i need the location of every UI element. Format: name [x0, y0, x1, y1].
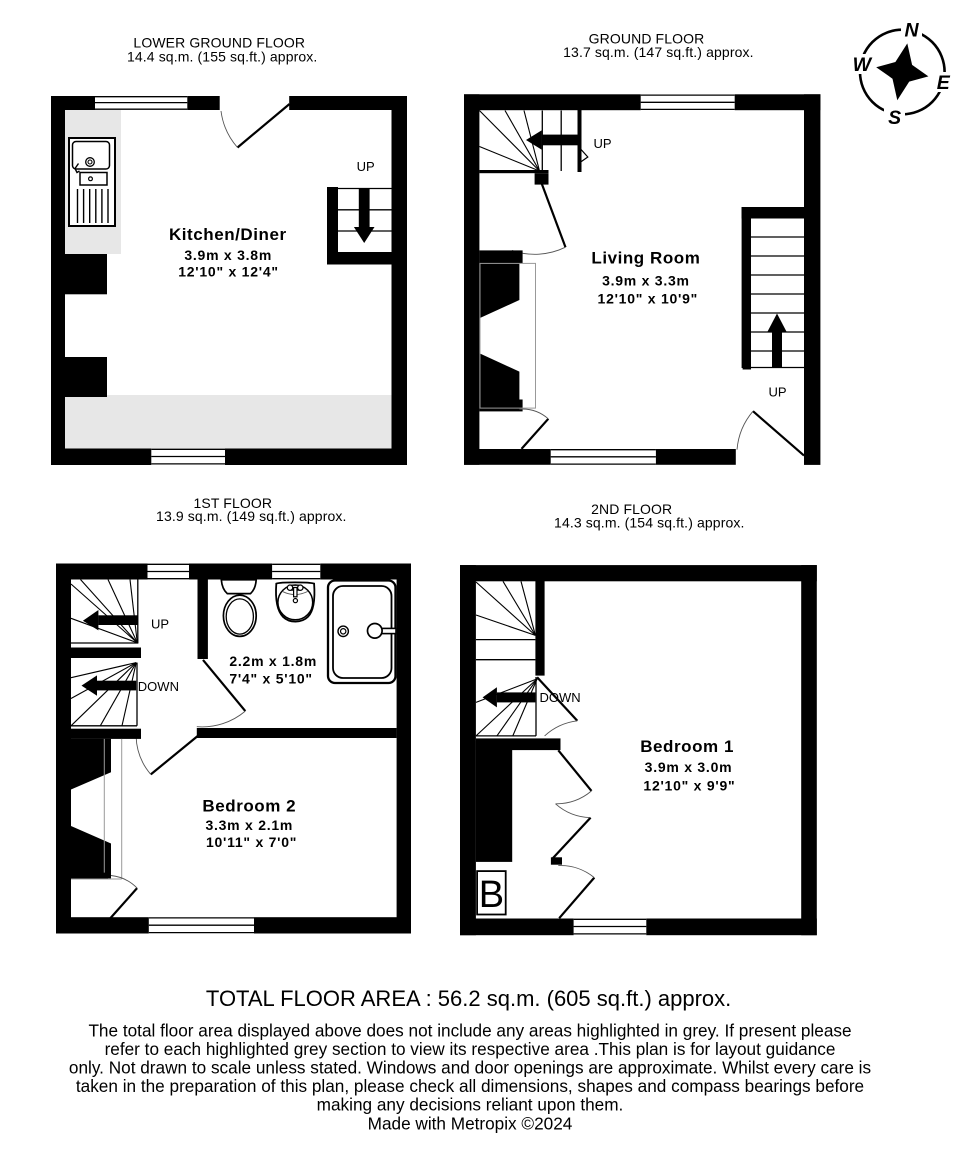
svg-text:UP: UP [593, 136, 611, 151]
svg-text:Living Room: Living Room [591, 249, 700, 268]
svg-text:12'10" x 9'9": 12'10" x 9'9" [643, 778, 735, 794]
svg-text:Made with Metropix ©2024: Made with Metropix ©2024 [368, 1113, 573, 1133]
svg-text:2.2m x 1.8m: 2.2m x 1.8m [229, 653, 317, 669]
svg-text:S: S [888, 107, 901, 129]
svg-text:3.3m x 2.1m: 3.3m x 2.1m [205, 817, 293, 833]
svg-text:12'10" x 10'9": 12'10" x 10'9" [598, 291, 699, 307]
svg-text:14.3 sq.m. (154 sq.ft.) approx: 14.3 sq.m. (154 sq.ft.) approx. [554, 515, 744, 531]
svg-text:W: W [853, 54, 873, 76]
svg-text:Kitchen/Diner: Kitchen/Diner [169, 225, 287, 244]
svg-text:12'10" x 12'4": 12'10" x 12'4" [178, 264, 279, 280]
svg-text:10'11" x 7'0": 10'11" x 7'0" [206, 834, 297, 850]
svg-text:E: E [937, 72, 951, 94]
svg-text:Bedroom 2: Bedroom 2 [202, 797, 296, 816]
svg-text:3.9m x 3.3m: 3.9m x 3.3m [602, 273, 690, 289]
svg-text:taken in the preparation of th: taken in the preparation of this plan, p… [76, 1076, 864, 1096]
svg-text:3.9m x 3.0m: 3.9m x 3.0m [645, 759, 733, 775]
svg-text:refer to each highlighted grey: refer to each highlighted grey section t… [105, 1039, 836, 1059]
svg-text:14.4 sq.m. (155 sq.ft.) approx: 14.4 sq.m. (155 sq.ft.) approx. [127, 48, 317, 64]
svg-text:UP: UP [768, 385, 786, 400]
svg-text:only. Not drawn to scale unles: only. Not drawn to scale unless stated. … [69, 1058, 871, 1078]
svg-text:13.7 sq.m. (147 sq.ft.) approx: 13.7 sq.m. (147 sq.ft.) approx. [563, 44, 753, 60]
svg-text:B: B [479, 874, 504, 916]
svg-text:Bedroom 1: Bedroom 1 [640, 737, 734, 756]
svg-text:7'4" x 5'10": 7'4" x 5'10" [229, 671, 312, 687]
svg-text:TOTAL FLOOR AREA : 56.2 sq.m.: TOTAL FLOOR AREA : 56.2 sq.m. (605 sq.ft… [206, 986, 731, 1011]
svg-text:N: N [904, 20, 919, 42]
svg-text:DOWN: DOWN [138, 679, 179, 694]
svg-text:UP: UP [357, 159, 375, 174]
svg-text:making any decisions reliant u: making any decisions reliant upon them. [317, 1095, 624, 1115]
svg-text:UP: UP [151, 617, 169, 632]
svg-text:The total floor area displayed: The total floor area displayed above doe… [88, 1020, 851, 1040]
svg-text:3.9m x 3.8m: 3.9m x 3.8m [184, 247, 272, 263]
svg-text:13.9 sq.m. (149 sq.ft.) approx: 13.9 sq.m. (149 sq.ft.) approx. [156, 508, 346, 524]
